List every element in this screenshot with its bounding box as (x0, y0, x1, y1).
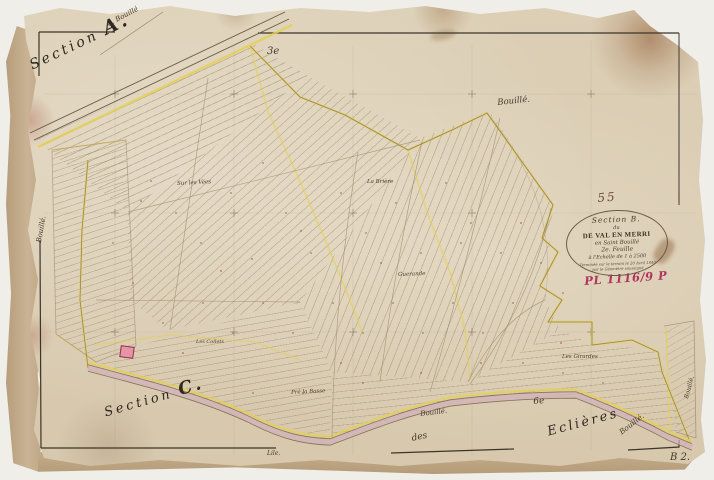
building-footprint-pink (119, 345, 135, 359)
parcel-number-marks-red (0, 0, 2, 2)
scanned-cadastral-map-sheet: Section A. C. Bouillé 3e Bouillé. Bouill… (0, 0, 714, 480)
map-paper-sheet (0, 0, 714, 480)
